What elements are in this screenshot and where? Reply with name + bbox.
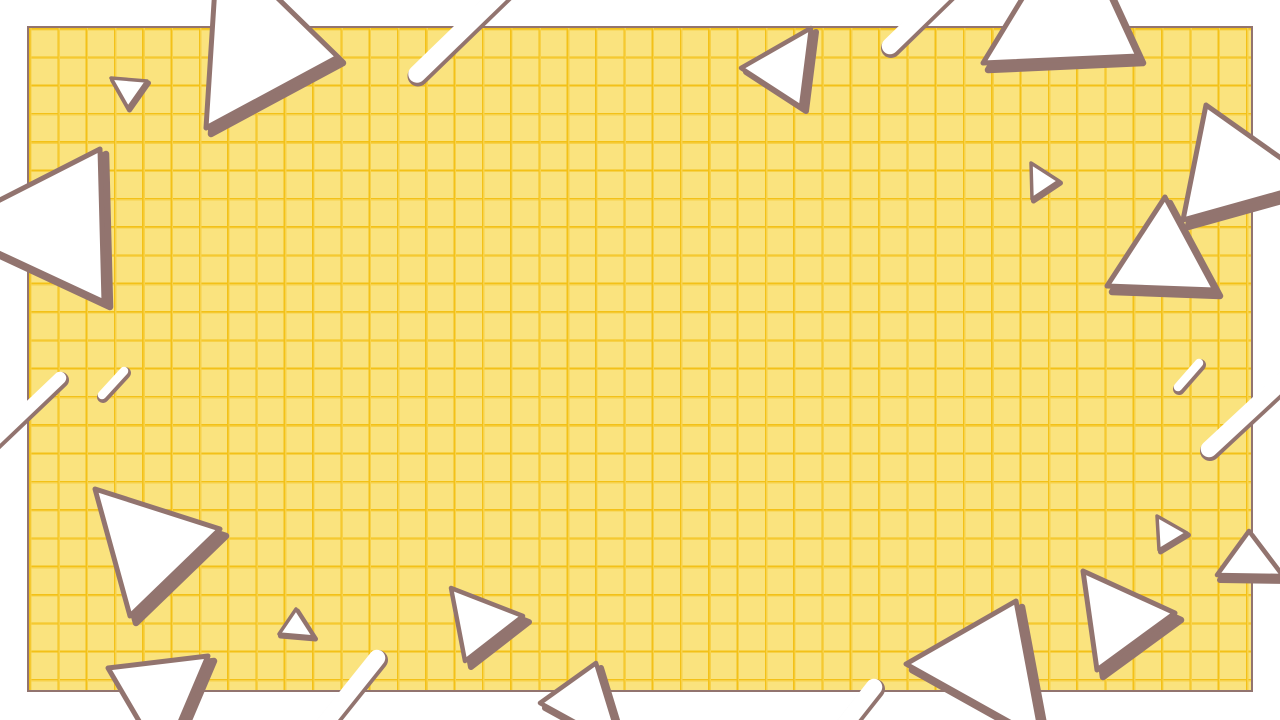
triangle-bottom-center-right	[451, 588, 529, 667]
triangle-bottom-right-left-pointing-face	[906, 601, 1042, 720]
triangle-top-right-large	[983, 0, 1143, 70]
triangle-center-right-small	[1031, 163, 1061, 201]
triangle-top-left-large-face	[206, 0, 338, 128]
triangle-bottom-left-large	[95, 489, 226, 623]
triangle-top-left-large	[206, 0, 343, 134]
triangle-bottom-center-left-pointing	[540, 663, 627, 720]
decor-layer	[0, 0, 1280, 720]
triangle-bottom-left-down	[108, 656, 214, 720]
triangle-top-right-large-face	[983, 0, 1138, 63]
triangle-top-middle-left-face	[741, 28, 811, 107]
triangle-bottom-right-left-pointing	[906, 601, 1048, 720]
triangle-left-large	[0, 149, 110, 307]
stick-left-long	[0, 378, 61, 480]
triangle-bottom-right-up-face	[1217, 531, 1280, 576]
slide-background	[0, 0, 1280, 720]
stick-top-left	[417, 0, 513, 76]
triangle-bottom-small-up-face	[279, 609, 314, 637]
triangle-bottom-right-up	[1217, 531, 1280, 581]
stick-bottom-left	[305, 658, 378, 720]
stick-right-long-face	[1209, 346, 1280, 449]
triangle-right-lower-small	[1157, 516, 1189, 552]
stick-bottom-middle	[818, 687, 875, 720]
stick-top-middle	[890, 0, 964, 48]
triangle-right-upper	[1183, 105, 1280, 227]
triangle-top-middle-left	[741, 28, 816, 111]
stick-right-long	[1209, 346, 1280, 451]
dash-right-small	[1178, 363, 1200, 389]
triangle-bottom-small-up	[279, 609, 316, 639]
stick-left-long-face	[0, 378, 60, 478]
triangle-top-left-small	[111, 78, 149, 110]
triangle-left-large-face	[0, 149, 104, 302]
triangle-bottom-right-large	[1083, 571, 1181, 677]
dash-left-small	[102, 371, 125, 397]
